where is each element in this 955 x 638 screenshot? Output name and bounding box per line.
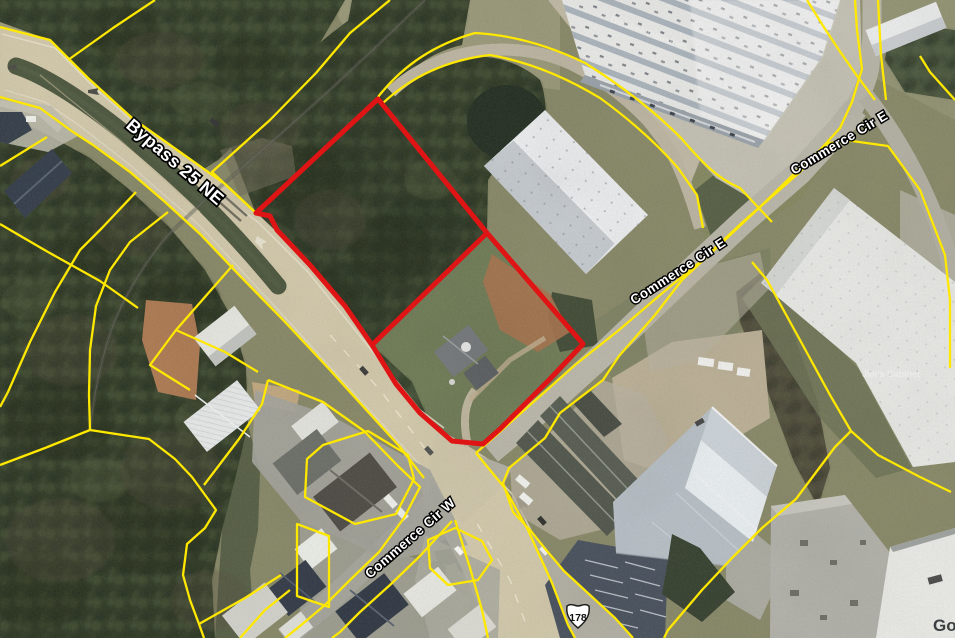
svg-text:Jim's Cabinet: Jim's Cabinet: [862, 369, 920, 379]
svg-text:Goog: Goog: [933, 616, 955, 635]
svg-text:178: 178: [569, 612, 587, 624]
